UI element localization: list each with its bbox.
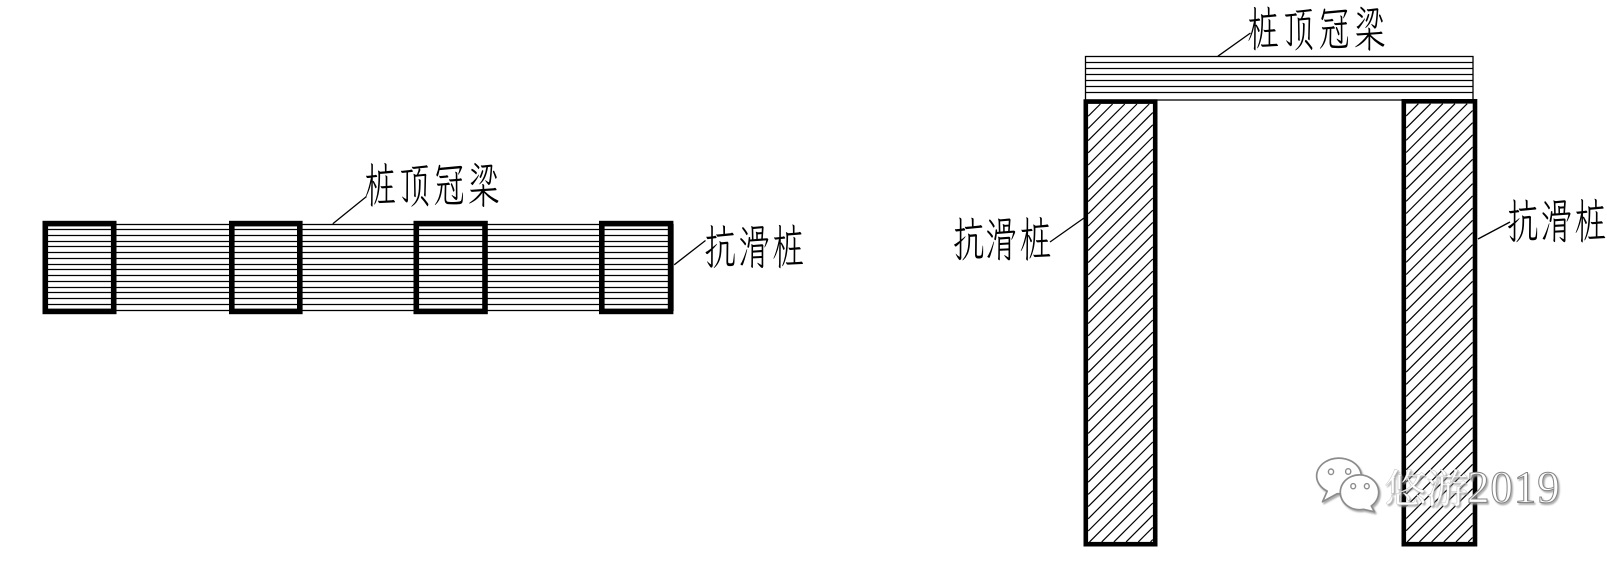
svg-text:2019: 2019 (1467, 463, 1561, 513)
